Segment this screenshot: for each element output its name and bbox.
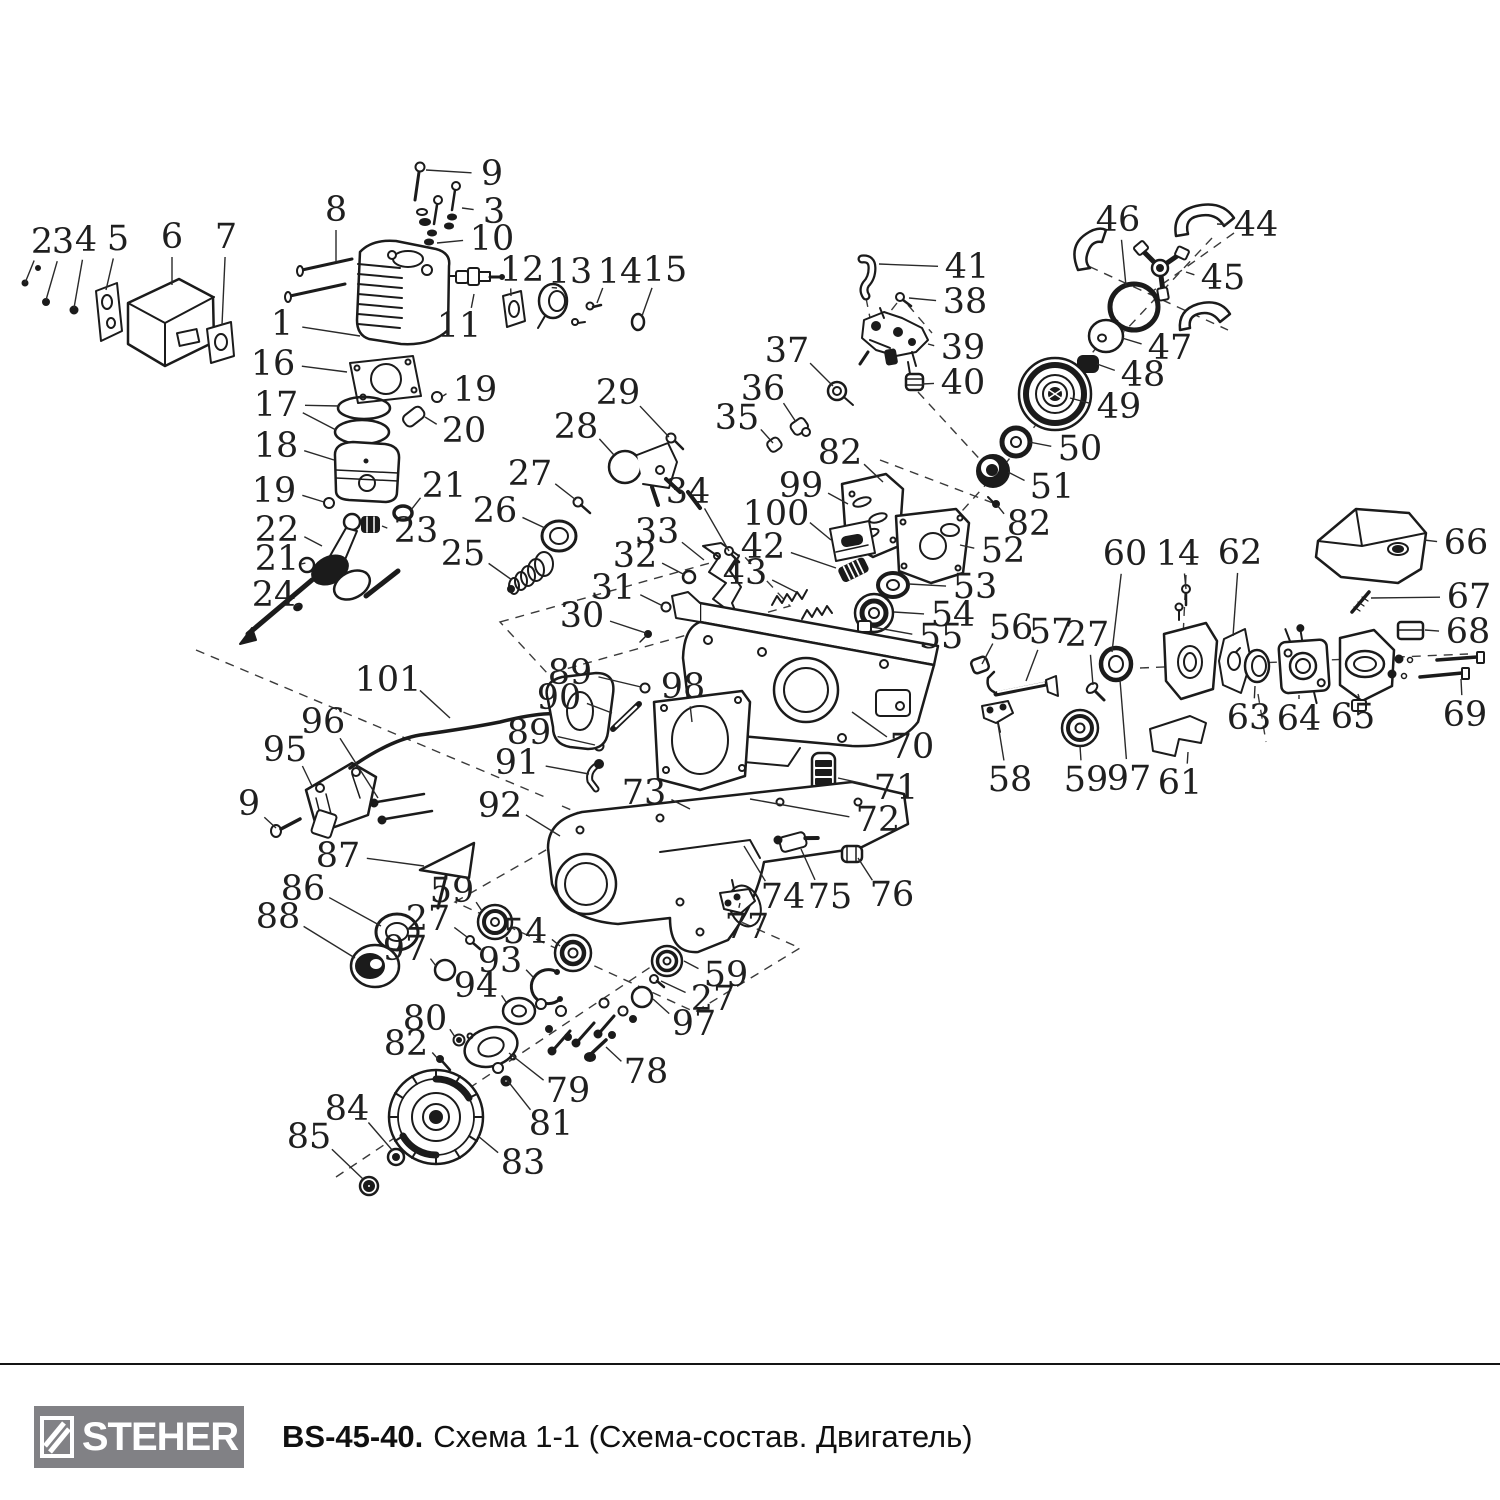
leader-line	[909, 584, 946, 586]
leader-line	[304, 926, 355, 958]
leader-line	[443, 394, 446, 396]
leader-line	[640, 595, 663, 606]
leader-line	[922, 383, 934, 384]
leader-line	[450, 1029, 455, 1037]
part-callout-61: 61	[1158, 763, 1203, 803]
part-callout-14: 14	[1156, 534, 1201, 574]
part-callout-55: 55	[919, 617, 964, 657]
leader-line	[1186, 272, 1194, 275]
part-callout-6: 6	[161, 217, 183, 257]
leader-line	[1461, 679, 1462, 695]
part-callout-97: 97	[672, 1004, 717, 1044]
part-callout-25: 25	[441, 534, 486, 574]
part-sketches	[23, 163, 1485, 1196]
part-callout-24: 24	[252, 575, 297, 615]
part-callout-4: 4	[75, 220, 97, 260]
part-callout-63: 63	[1227, 698, 1272, 738]
part-callout-51: 51	[1030, 467, 1075, 507]
leader-line	[1120, 680, 1126, 759]
part-callout-73: 73	[622, 773, 667, 813]
brand-logo-icon	[40, 1416, 74, 1458]
leader-line	[810, 363, 833, 386]
leader-line	[454, 927, 467, 937]
part-callout-83: 83	[501, 1143, 546, 1183]
part-callout-97: 97	[383, 929, 428, 969]
part-callout-68: 68	[1446, 612, 1491, 652]
part-callout-19: 19	[252, 471, 297, 511]
part-callout-15: 15	[643, 250, 688, 290]
leader-line	[894, 612, 924, 614]
leader-line	[610, 621, 646, 633]
leader-line	[928, 344, 934, 346]
leader-line	[411, 498, 421, 510]
part-callout-50: 50	[1058, 429, 1103, 469]
part-callout-46: 46	[1096, 200, 1141, 240]
leader-line	[222, 257, 225, 325]
part-callout-44: 44	[1234, 205, 1279, 245]
part-callout-76: 76	[870, 875, 915, 915]
part-callout-20: 20	[442, 411, 487, 451]
leader-line	[640, 406, 669, 437]
part-callout-64: 64	[1277, 699, 1322, 739]
diagram-caption: BS-45-40. Схема 1-1 (Схема-состав. Двига…	[282, 1406, 973, 1468]
part-sketch-muffler-group	[23, 266, 235, 366]
leader-line	[303, 413, 336, 430]
leader-line	[684, 961, 698, 969]
leader-line	[682, 542, 704, 560]
leader-line	[502, 995, 506, 1002]
part-callout-11: 11	[437, 306, 482, 346]
part-callout-3: 3	[52, 222, 74, 262]
part-callout-58: 58	[988, 760, 1033, 800]
leader-line	[653, 999, 669, 1014]
part-callout-5: 5	[107, 219, 129, 259]
scheme-title: Схема 1-1 (Схема-состав. Двигатель)	[433, 1419, 972, 1455]
leader-line	[772, 580, 796, 592]
leader-line	[332, 1149, 363, 1179]
part-callout-60: 60	[1103, 534, 1148, 574]
part-callout-67: 67	[1447, 577, 1492, 617]
part-callout-9: 9	[481, 154, 503, 194]
leader-line	[1097, 364, 1115, 370]
leader-line	[437, 240, 463, 243]
leader-line	[1233, 573, 1238, 636]
exploded-diagram: 2345678931011112131415161719201819212223…	[0, 0, 1500, 1500]
leader-line	[1090, 655, 1093, 685]
leader-line	[304, 451, 334, 460]
part-callout-19: 19	[453, 370, 498, 410]
part-sketch-clutch-group	[977, 205, 1234, 488]
part-callout-37: 37	[765, 331, 810, 371]
part-callout-70: 70	[890, 727, 935, 767]
part-callout-39: 39	[941, 328, 986, 368]
leader-line	[302, 495, 324, 502]
part-callout-94: 94	[454, 966, 499, 1006]
part-callout-40: 40	[941, 363, 986, 403]
part-callout-72: 72	[856, 800, 901, 840]
leader-line	[478, 1136, 498, 1153]
part-callout-49: 49	[1097, 387, 1142, 427]
part-callout-59: 59	[1064, 760, 1109, 800]
leader-line	[791, 553, 836, 568]
brand-name: STEHER	[82, 1415, 238, 1460]
part-callout-96: 96	[301, 702, 346, 742]
model-number: BS-45-40.	[282, 1419, 423, 1455]
part-callout-66: 66	[1444, 523, 1489, 563]
part-callout-75: 75	[808, 877, 853, 917]
leader-line	[555, 484, 576, 500]
leader-line	[489, 563, 512, 580]
part-callout-92: 92	[478, 786, 523, 826]
part-callout-2: 2	[31, 222, 53, 262]
leader-line	[425, 417, 437, 424]
page: 2345678931011112131415161719201819212223…	[0, 0, 1500, 1500]
leader-line	[426, 170, 472, 173]
leader-line	[476, 902, 482, 911]
part-callout-90: 90	[537, 678, 582, 718]
leader-line	[264, 817, 276, 828]
part-callout-81: 81	[529, 1104, 574, 1144]
leader-line	[1080, 746, 1081, 760]
leader-line	[305, 405, 339, 406]
leader-line	[879, 264, 938, 266]
part-callout-9: 9	[238, 784, 260, 824]
leader-line	[997, 505, 1004, 514]
part-callout-7: 7	[215, 217, 237, 257]
part-callout-8: 8	[325, 190, 347, 230]
leader-line	[1112, 574, 1121, 652]
leader-line	[810, 523, 831, 540]
part-callout-17: 17	[254, 385, 299, 425]
brand-logo: STEHER	[34, 1406, 244, 1468]
part-callout-34: 34	[666, 472, 711, 512]
part-callout-85: 85	[287, 1117, 332, 1157]
leader-line	[1122, 338, 1142, 344]
part-callout-12: 12	[500, 250, 545, 290]
part-callout-36: 36	[741, 369, 786, 409]
leader-line	[642, 288, 652, 316]
leader-line	[522, 517, 545, 528]
leader-line	[1425, 630, 1439, 631]
part-callout-27: 27	[1065, 615, 1110, 655]
part-callout-95: 95	[263, 730, 308, 770]
leader-line	[302, 366, 347, 372]
part-callout-101: 101	[355, 660, 422, 700]
leader-line	[432, 1052, 438, 1059]
part-callout-52: 52	[981, 531, 1026, 571]
leader-line	[1008, 472, 1025, 481]
part-callout-82: 82	[818, 433, 863, 473]
part-callout-13: 13	[548, 252, 593, 292]
leader-line	[329, 898, 381, 926]
leader-line	[367, 858, 424, 866]
leader-line	[304, 537, 322, 546]
part-callout-26: 26	[473, 491, 518, 531]
part-callout-18: 18	[254, 426, 299, 466]
part-callout-21: 21	[255, 539, 300, 579]
leader-line	[74, 260, 82, 308]
part-callout-1: 1	[271, 304, 293, 344]
part-callout-30: 30	[560, 596, 605, 636]
leader-line	[1187, 752, 1188, 764]
part-callout-84: 84	[325, 1089, 370, 1129]
part-callout-28: 28	[554, 407, 599, 447]
part-callout-23: 23	[394, 511, 439, 551]
leader-line	[46, 261, 57, 300]
leader-line	[526, 970, 533, 977]
part-callout-27: 27	[508, 454, 553, 494]
part-callout-69: 69	[1443, 695, 1488, 735]
leader-line	[509, 1053, 544, 1080]
leader-line	[25, 260, 34, 283]
part-callout-45: 45	[1201, 258, 1246, 298]
leader-line	[1026, 650, 1038, 681]
part-callout-14: 14	[598, 252, 643, 292]
leader-line	[302, 327, 360, 336]
part-callout-82: 82	[384, 1024, 429, 1064]
leader-line	[998, 724, 1004, 760]
leader-line	[1371, 597, 1440, 598]
part-callout-16: 16	[251, 344, 296, 384]
footer-divider	[0, 1363, 1500, 1365]
leader-line	[1121, 240, 1126, 286]
leader-line	[599, 439, 614, 455]
part-callout-91: 91	[495, 743, 540, 783]
part-callout-29: 29	[596, 373, 641, 413]
leader-line	[909, 298, 936, 301]
leader-line	[301, 563, 305, 564]
leader-line	[784, 403, 796, 422]
part-callout-77: 77	[725, 907, 770, 947]
leader-line	[430, 959, 436, 966]
part-callout-78: 78	[624, 1052, 669, 1092]
part-callout-21: 21	[422, 466, 467, 506]
leader-line	[462, 208, 474, 210]
leader-line	[606, 1047, 621, 1061]
part-callout-97: 97	[1107, 759, 1152, 799]
leader-line	[382, 526, 387, 528]
part-callout-88: 88	[256, 897, 301, 937]
leader-line	[546, 766, 589, 774]
part-callout-98: 98	[661, 667, 706, 707]
leader-line	[507, 1080, 530, 1110]
leader-line	[761, 429, 773, 443]
leader-line	[1254, 686, 1255, 698]
leader-line	[420, 690, 450, 718]
part-callout-65: 65	[1331, 697, 1376, 737]
part-callout-43: 43	[723, 553, 768, 593]
part-callout-56: 56	[989, 608, 1034, 648]
part-callout-62: 62	[1218, 533, 1263, 573]
part-callout-38: 38	[943, 282, 988, 322]
part-callout-41: 41	[945, 247, 990, 287]
